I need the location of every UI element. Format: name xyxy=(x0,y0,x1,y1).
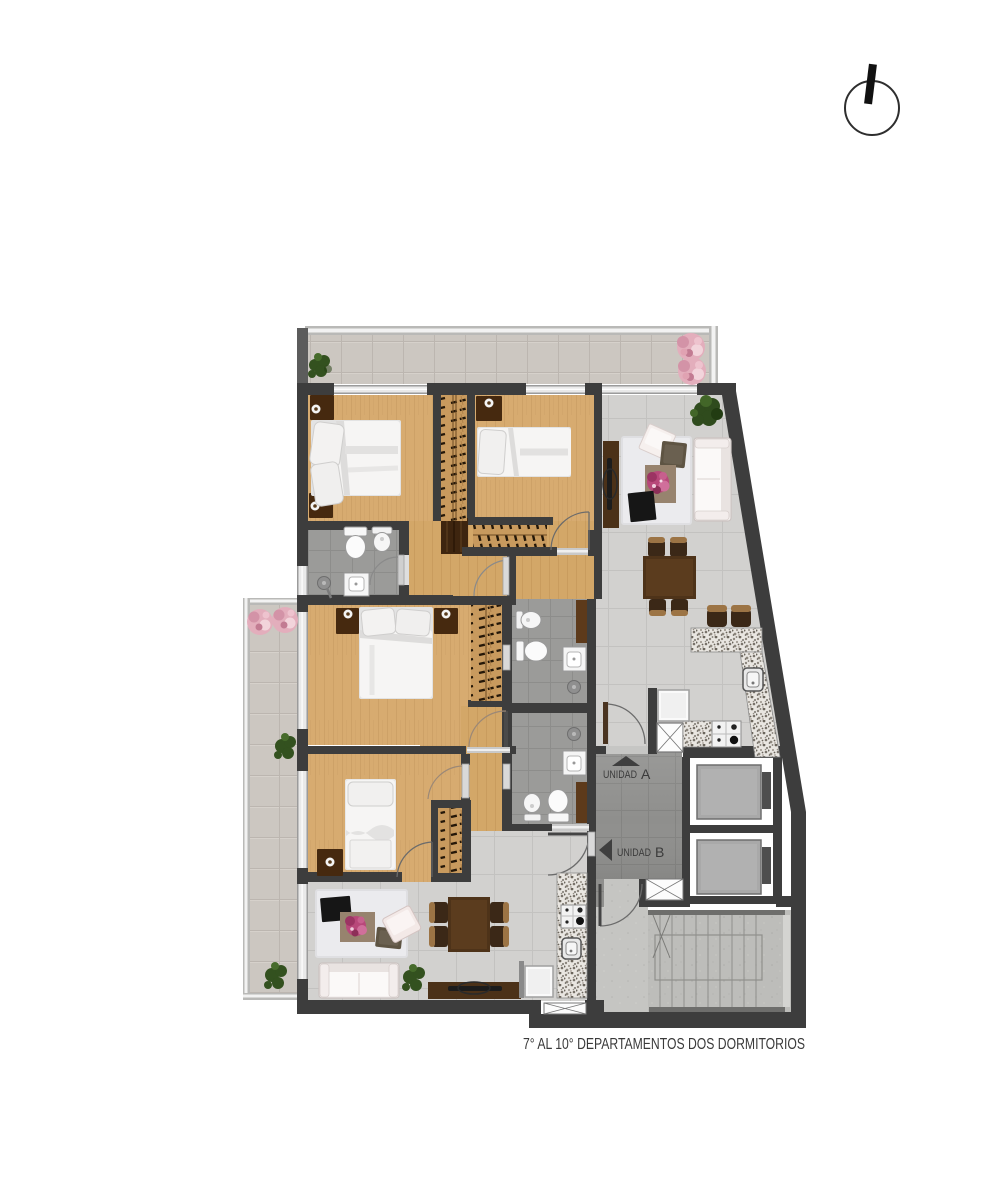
svg-text:7° AL 10° DEPARTAMENTOS DOS DO: 7° AL 10° DEPARTAMENTOS DOS DORMITORIOS xyxy=(523,1036,805,1053)
svg-text:UNIDAD: UNIDAD xyxy=(617,847,651,859)
svg-text:A: A xyxy=(641,766,651,782)
svg-text:B: B xyxy=(655,844,664,860)
svg-text:UNIDAD: UNIDAD xyxy=(603,769,637,781)
